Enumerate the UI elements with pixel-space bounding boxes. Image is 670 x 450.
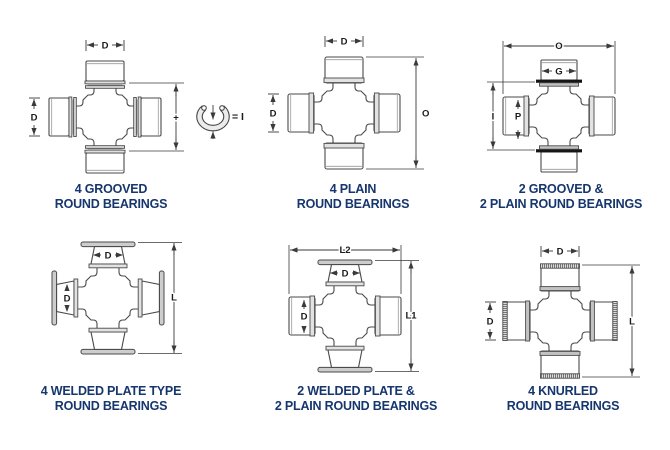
caption-line-2: ROUND BEARINGS	[4, 399, 218, 414]
caption-4-grooved: 4 GROOVED ROUND BEARINGS	[4, 182, 218, 212]
diagram-4-knurled: D D L	[462, 234, 666, 402]
dim-label-cup-width: D	[105, 251, 112, 262]
dim-label-G: G	[555, 67, 562, 78]
dim-label-I: I	[492, 112, 495, 123]
caption-4-knurled: 4 KNURLED ROUND BEARINGS	[460, 384, 666, 414]
cross-4-grooved	[49, 61, 161, 173]
caption-line-1: 2 GROOVED &	[455, 182, 667, 197]
dim-label-L1: L1	[405, 311, 417, 322]
dim-top-width: D	[86, 40, 124, 52]
dim-label-left-diameter: D	[270, 109, 277, 120]
dim-label-cup-diameter: D	[301, 312, 308, 323]
caption-line-2: ROUND BEARINGS	[4, 197, 218, 212]
diagram-4-welded-plate: D D L	[8, 234, 260, 402]
caption-line-1: 4 KNURLED	[460, 384, 666, 399]
snap-ring	[200, 105, 227, 139]
caption-line-1: 2 WELDED PLATE &	[250, 384, 462, 399]
dim-label-L: L	[629, 317, 635, 328]
dim-label-cup-diameter: D	[64, 294, 71, 305]
caption-line-2: 2 PLAIN ROUND BEARINGS	[250, 399, 462, 414]
dim-left-diameter: D	[29, 98, 40, 136]
cross-4-knurled	[503, 264, 617, 378]
caption-4-plain: 4 PLAIN ROUND BEARINGS	[258, 182, 448, 212]
diagram-4-grooved: D D + = I	[8, 8, 260, 180]
dim-top-width: D	[325, 36, 363, 48]
cross-4-plain	[288, 57, 400, 169]
diagram-2-welded-2-plain: L2 D D L1	[258, 234, 454, 402]
caption-2-welded-2-plain: 2 WELDED PLATE & 2 PLAIN ROUND BEARINGS	[250, 384, 462, 414]
dim-label-top-width: D	[341, 37, 348, 48]
dim-label-O: O	[422, 109, 429, 120]
caption-line-2: 2 PLAIN ROUND BEARINGS	[455, 197, 667, 212]
caption-line-1: 4 PLAIN	[258, 182, 448, 197]
dim-label-top-width: D	[102, 41, 109, 52]
caption-2-grooved-2-plain: 2 GROOVED & 2 PLAIN ROUND BEARINGS	[455, 182, 667, 212]
caption-4-welded-plate: 4 WELDED PLATE TYPE ROUND BEARINGS	[4, 384, 218, 414]
caption-line-1: 4 WELDED PLATE TYPE	[4, 384, 218, 399]
caption-line-1: 4 GROOVED	[4, 182, 218, 197]
dim-label-left-diameter: D	[487, 317, 494, 328]
caption-line-2: ROUND BEARINGS	[258, 197, 448, 212]
dim-label-L2: L2	[339, 245, 350, 256]
dim-top-width: D	[541, 246, 579, 258]
caption-line-2: ROUND BEARINGS	[460, 399, 666, 414]
snap-ring-equals-label: = I	[232, 111, 244, 123]
bearing-types-chart: D D + = I 4 GROOVED ROUND BEAR	[0, 0, 670, 450]
diagram-4-plain: D D O	[258, 8, 454, 180]
dim-label-left-diameter: D	[31, 113, 38, 124]
dim-label-L: L	[171, 293, 177, 304]
dim-label-top-width: D	[557, 247, 564, 258]
dim-left-diameter: D	[268, 94, 279, 132]
dim-label-plus: +	[173, 113, 179, 124]
dim-label-cup-width: D	[342, 269, 349, 280]
diagram-2-grooved-2-plain: O G I P	[462, 8, 666, 180]
dim-label-O: O	[555, 41, 562, 52]
dim-label-P: P	[515, 112, 522, 123]
dim-left-diameter: D	[485, 302, 496, 340]
